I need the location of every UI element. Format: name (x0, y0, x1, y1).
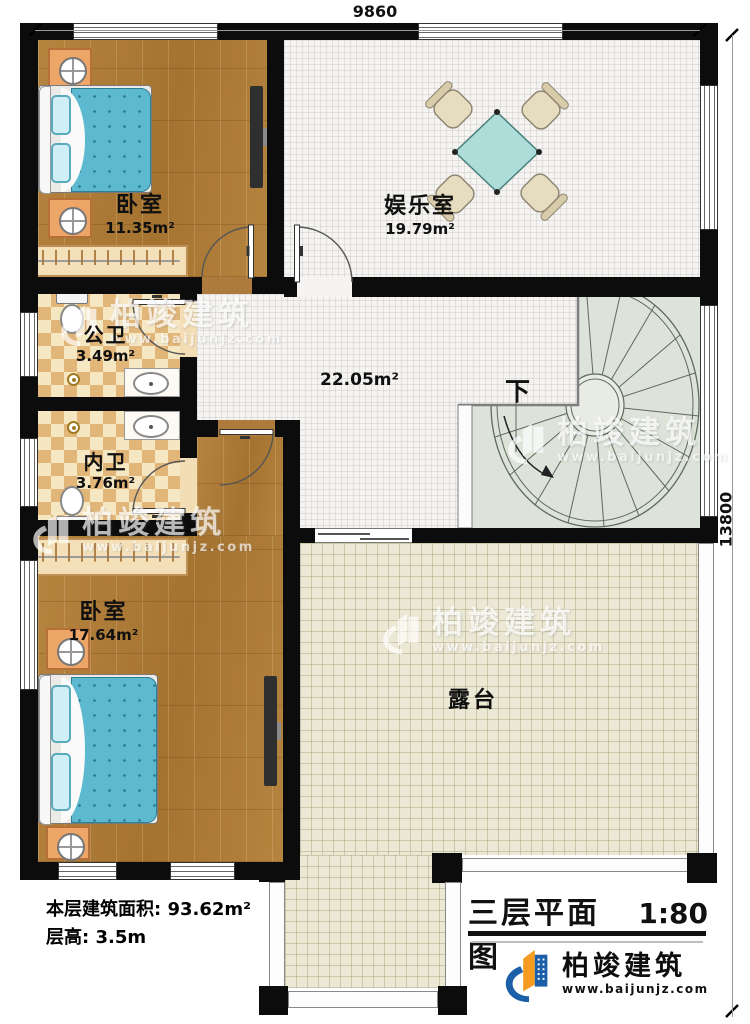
door-opening-bedroom2 (218, 420, 275, 437)
dimension-right: 13800 (717, 482, 736, 558)
sink-basin-icon (133, 372, 169, 395)
spiral-staircase (455, 280, 718, 543)
room-label-bedroom2: 卧室 17.64m² (56, 600, 151, 644)
room-label-privatebath: 内卫 3.76m² (68, 450, 143, 492)
tv-mount (277, 722, 281, 740)
window-publicbath-left (20, 312, 38, 377)
brand-name: 柏竣建筑 (562, 953, 709, 980)
tv (250, 86, 263, 188)
bed-headboard (39, 86, 51, 194)
ceiling-lamp-icon (67, 421, 80, 434)
pillow (51, 143, 71, 183)
door-opening-bedroom1 (202, 277, 252, 294)
window-bedroom2-bottom-2 (170, 862, 235, 880)
window-entertainment-top (418, 23, 563, 40)
floor-height-line: 层高: 3.5m (46, 924, 251, 952)
pillow (51, 685, 71, 743)
entertainment-floor (284, 40, 700, 277)
wall-bath-divider (20, 397, 180, 411)
room-name: 娱乐室 (370, 194, 470, 220)
nightstand (46, 826, 90, 860)
terrace-pillar (432, 853, 462, 883)
floor-plan: 柏竣建筑 www.baijunjz.com 柏竣建筑 www.baijunjz.… (0, 0, 750, 1024)
sink-vanity (124, 411, 180, 440)
floor-height-label: 层高: (46, 927, 89, 948)
room-area: 3.76m² (68, 474, 143, 492)
floor-area-label: 本层建筑面积: (46, 899, 161, 920)
terrace-ext-railing-right (445, 882, 461, 988)
stairs-down-label: 下 (505, 372, 530, 408)
brand-logo-icon (502, 946, 556, 1004)
terrace-pillar (259, 986, 288, 1015)
window-bedroom2-bottom-1 (58, 862, 117, 880)
wall-slidingdoor-jamb (283, 528, 315, 543)
room-label-publicbath: 公卫 3.49m² (68, 323, 143, 365)
bed-headboard (39, 675, 51, 825)
bedroom2-entry-floor (197, 437, 283, 536)
floor-area-value: 93.62m² (167, 899, 251, 920)
terrace-railing-bottom (462, 858, 688, 872)
room-label-terrace: 露台 (448, 682, 498, 714)
door-opening-entertainment (297, 277, 352, 297)
nightstand (48, 48, 92, 88)
terrace-floor (300, 543, 698, 855)
sink-basin-icon (133, 415, 169, 438)
wardrobe (27, 538, 188, 576)
pillow (51, 753, 71, 811)
title-underline-thin (471, 941, 703, 943)
room-name: 内卫 (68, 450, 143, 474)
window-privatebath-left (20, 438, 38, 507)
floor-area-line: 本层建筑面积: 93.62m² (46, 896, 251, 924)
wall-privatebath-bottom (20, 520, 197, 536)
sink-vanity (124, 368, 180, 397)
terrace-railing-right (698, 543, 714, 855)
door-opening-publicbath (180, 302, 197, 357)
window-stairs-right (700, 305, 718, 517)
bed (38, 85, 152, 193)
room-area: 19.79m² (370, 220, 470, 238)
sliding-door-terrace (315, 528, 412, 543)
wall-bedroom2-right (283, 420, 300, 880)
title-scale: 1:80 (638, 897, 708, 930)
hall-area-label: 22.05m² (320, 370, 399, 390)
lamp-icon (59, 57, 87, 85)
pillow (51, 95, 71, 135)
floor-height-value: 3.5m (95, 927, 146, 948)
wall-bedroom1-divider (267, 40, 284, 277)
lamp-icon (57, 833, 85, 861)
tv (264, 676, 277, 786)
terrace-ext-railing-bottom (288, 991, 438, 1008)
bed (38, 674, 158, 824)
terrace-extension-floor (285, 855, 445, 988)
room-area: 17.64m² (56, 626, 151, 644)
ceiling-lamp-icon (67, 373, 80, 386)
room-label-entertainment: 娱乐室 19.79m² (370, 194, 470, 238)
wardrobe (27, 245, 188, 277)
stair-railing (458, 405, 472, 528)
room-area: 3.49m² (68, 347, 143, 365)
window-bedroom2-left (20, 560, 38, 690)
terrace-pillar (687, 853, 717, 883)
title-underline-thick (468, 931, 706, 936)
terrace-pillar (259, 864, 285, 882)
room-name: 卧室 (80, 193, 200, 219)
brand-url: www.baijunjz.com (562, 980, 709, 998)
terrace-pillar (438, 986, 467, 1015)
room-name: 公卫 (68, 323, 143, 347)
floor-info: 本层建筑面积: 93.62m² 层高: 3.5m (46, 896, 251, 952)
door-opening-privatebath (180, 458, 197, 513)
terrace-ext-railing-left (269, 882, 285, 988)
room-name: 卧室 (56, 600, 151, 626)
brand-logo-block: 柏竣建筑 www.baijunjz.com (502, 946, 709, 1004)
dimension-line-top (35, 30, 700, 31)
window-entertainment-right (700, 85, 718, 230)
room-area: 11.35m² (80, 219, 200, 237)
room-label-bedroom1: 卧室 11.35m² (80, 193, 200, 237)
window-bedroom1-top (73, 23, 218, 40)
wall-hall-terrace (412, 528, 700, 543)
dimension-top: 9860 (330, 2, 420, 21)
